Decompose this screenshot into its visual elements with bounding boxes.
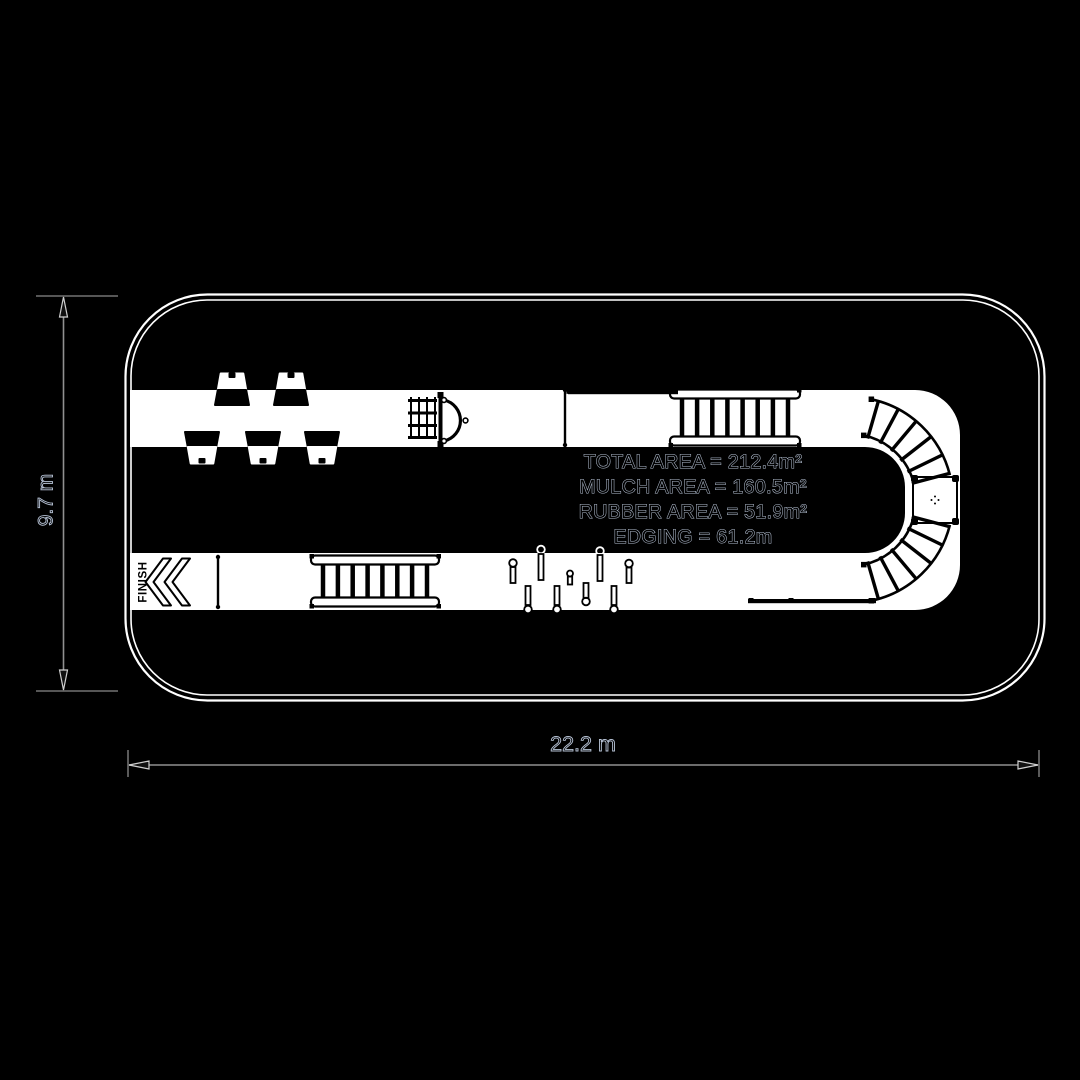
stepping-pod [305, 432, 339, 464]
stat-rubber-area: RUBBER AREA = 51.9m² [579, 501, 808, 523]
stepping-pod [246, 432, 280, 464]
stat-total-area: TOTAL AREA = 212.4m² [584, 451, 803, 473]
site-plan-canvas: FINISH TOTAL AREA = 212.4m² MULCH AREA =… [0, 0, 1080, 1080]
stepping-pod [215, 373, 249, 406]
width-dimension-label: 22.2 m [550, 732, 616, 756]
stepping-pod [274, 373, 308, 406]
trim-trail-plan: FINISH TOTAL AREA = 212.4m² MULCH AREA =… [0, 0, 1080, 1080]
height-dimension-label: 9.7 m [35, 474, 58, 527]
stepping-pod [185, 432, 219, 464]
stat-mulch-area: MULCH AREA = 160.5m² [579, 476, 807, 498]
stat-edging: EDGING = 61.2m [614, 526, 773, 548]
